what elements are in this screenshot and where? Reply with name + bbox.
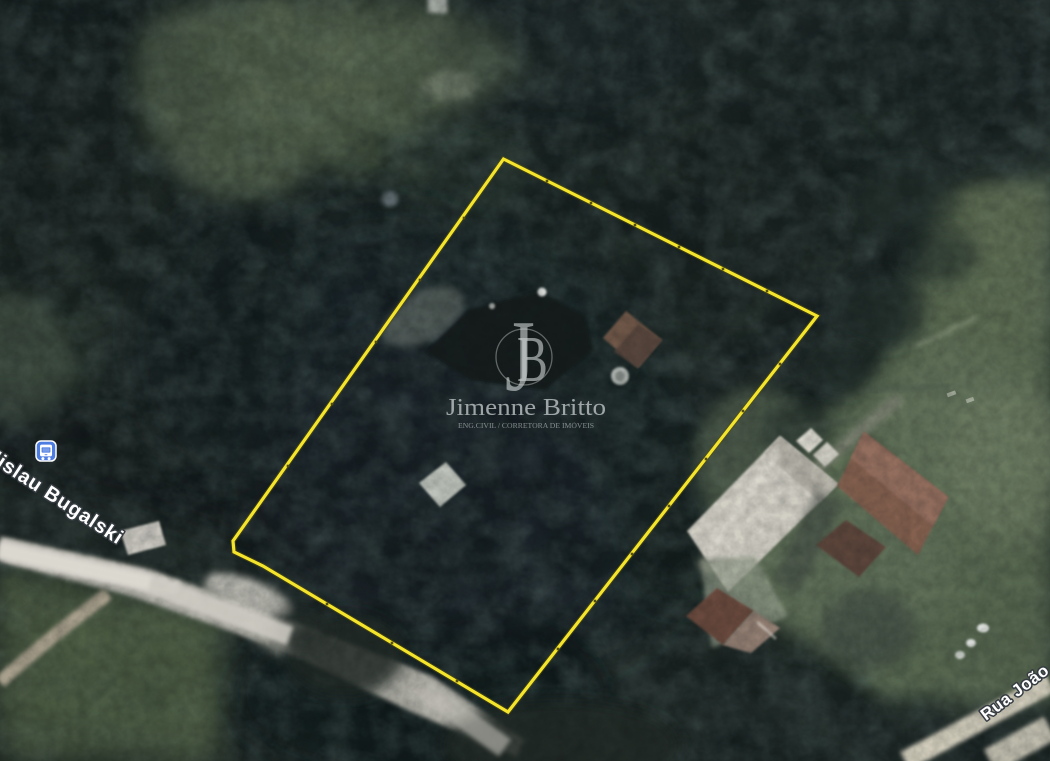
svg-text:ENG.CIVIL / CORRETORA DE IMÓVE: ENG.CIVIL / CORRETORA DE IMÓVEIS: [458, 422, 594, 430]
svg-text:Jimenne Britto: Jimenne Britto: [446, 395, 606, 421]
svg-text:B: B: [517, 323, 548, 396]
